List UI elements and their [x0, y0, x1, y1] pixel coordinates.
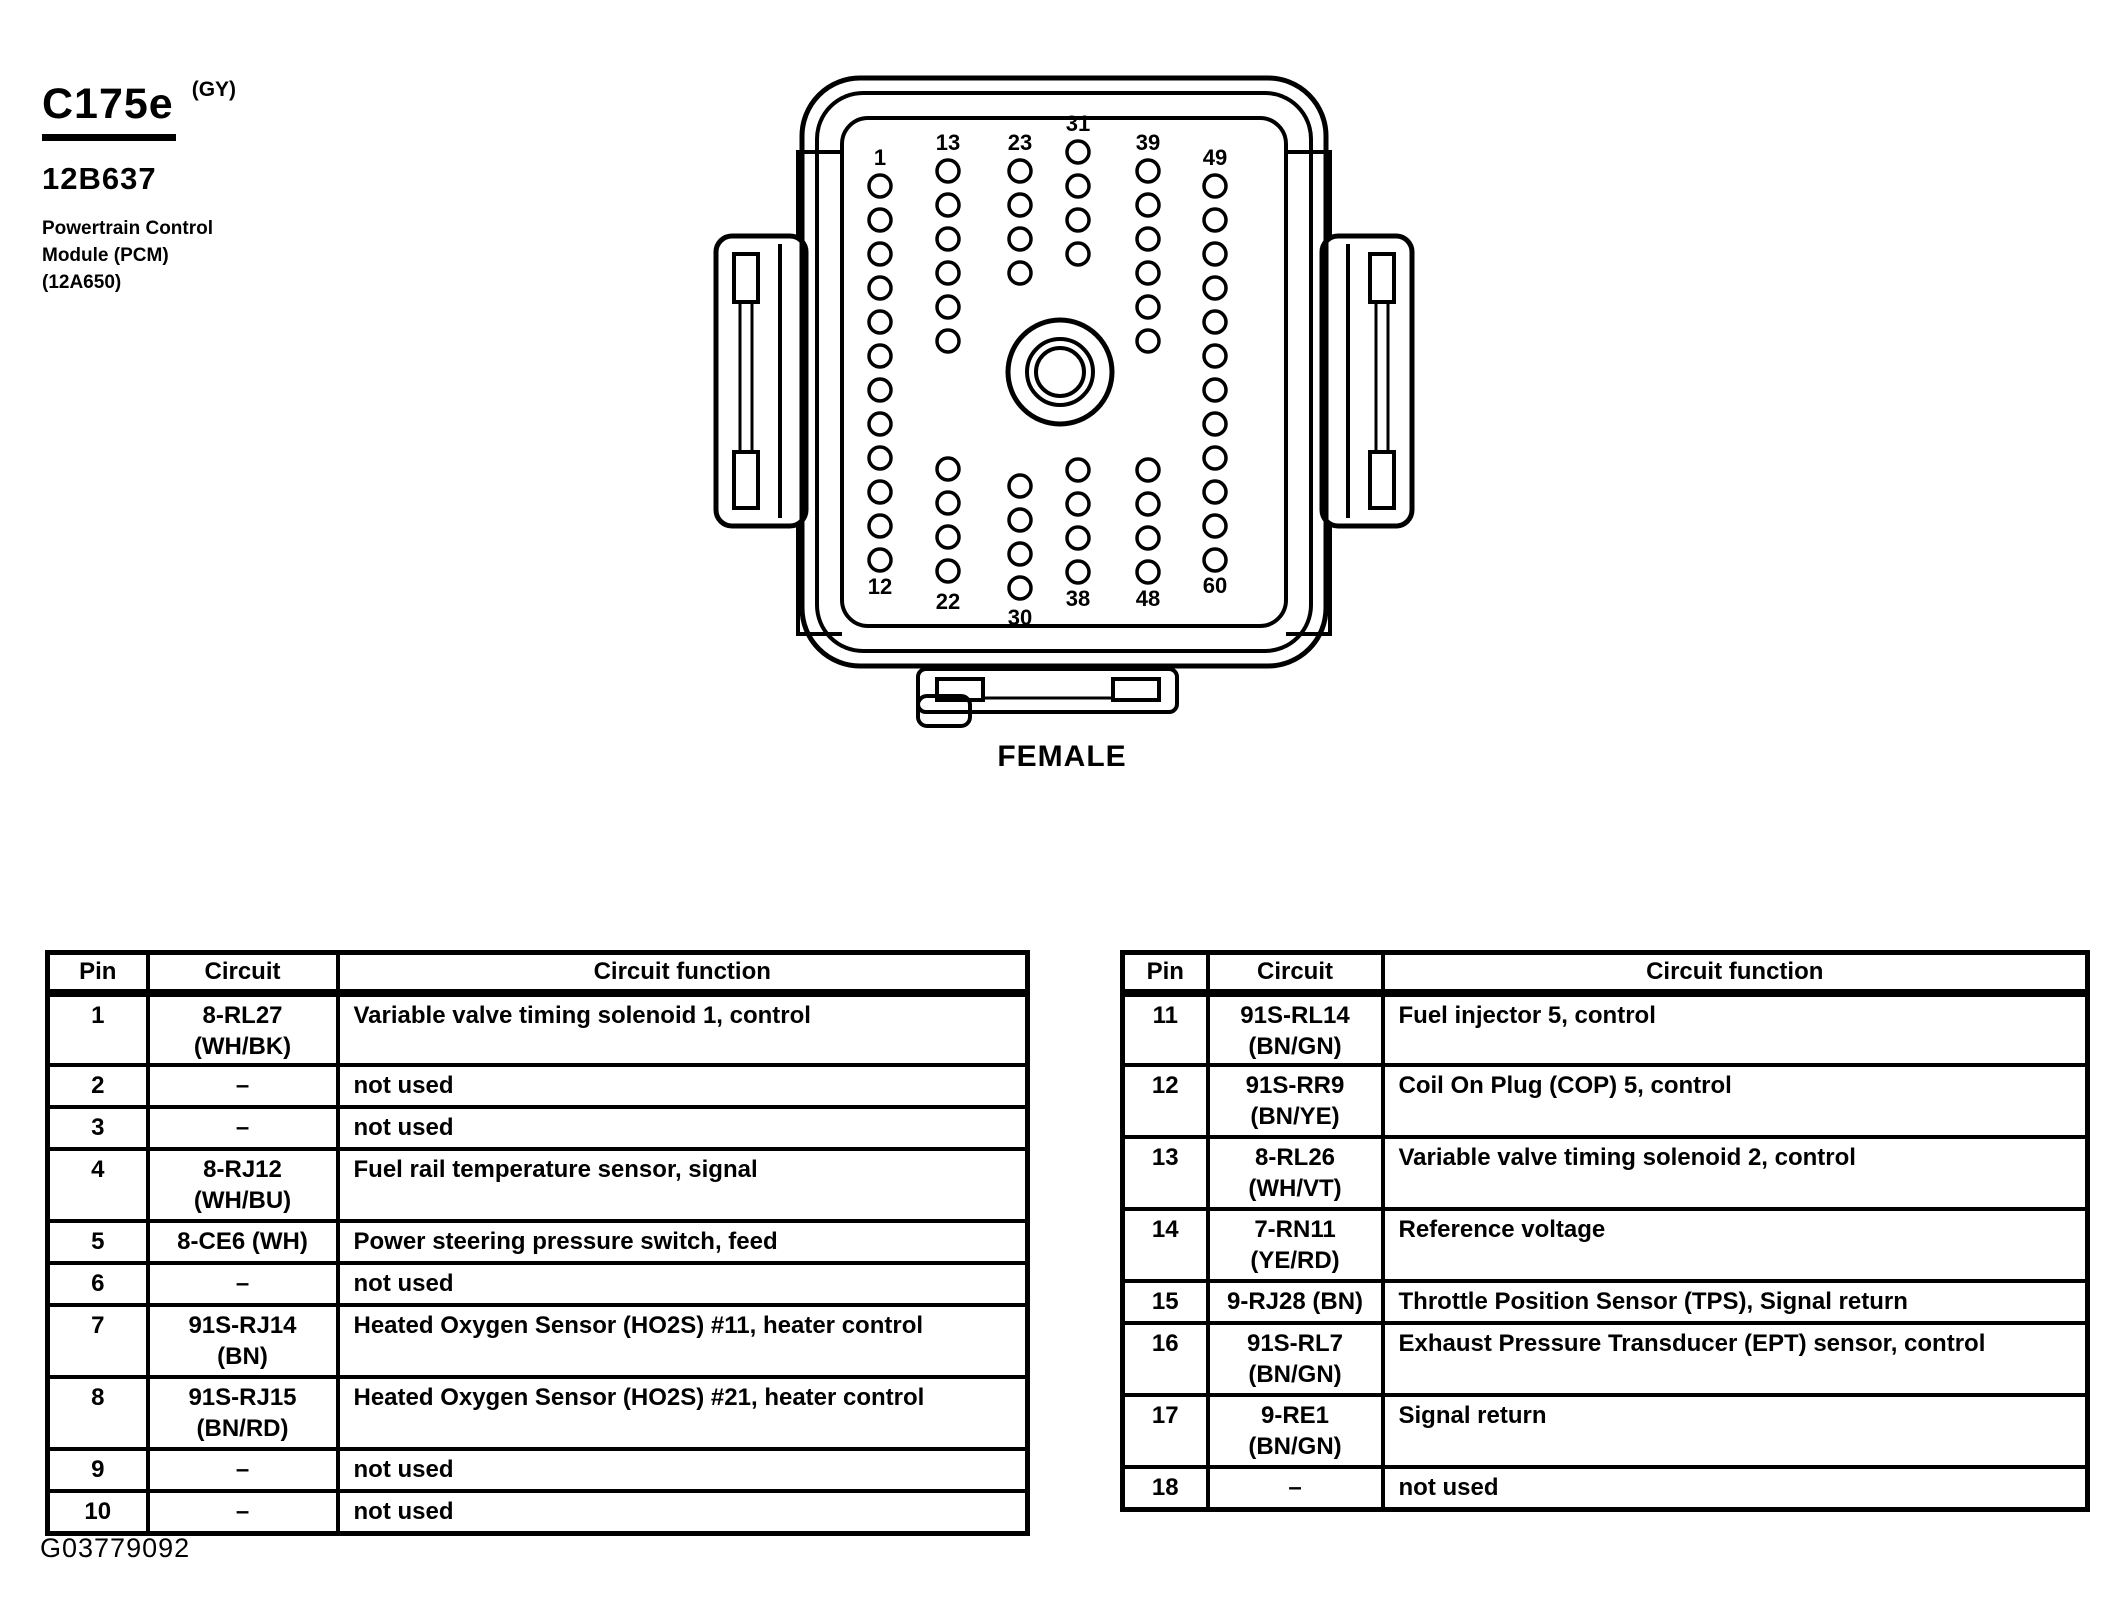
pin-hole: [1067, 561, 1089, 583]
circuit-function-cell: Variable valve timing solenoid 1, contro…: [338, 993, 1028, 1065]
pin-cell: 11: [1123, 993, 1208, 1065]
left-latch-lock-top: [734, 254, 758, 302]
pin-hole: [869, 243, 891, 265]
connector-title-row: C175e(GY): [42, 78, 236, 141]
pin-hole: [1137, 228, 1159, 250]
pin-hole: [1204, 447, 1226, 469]
pin-cell: 2: [48, 1065, 148, 1107]
pin-column-label-bottom: 48: [1136, 586, 1160, 611]
pin-hole: [869, 379, 891, 401]
pin-hole: [937, 458, 959, 480]
pin-hole: [1137, 527, 1159, 549]
connector-color-code: (GY): [192, 78, 236, 101]
pin-hole: [1137, 493, 1159, 515]
pin-cell: 5: [48, 1221, 148, 1263]
circuit-cell: 91S-RJ14(BN): [148, 1305, 338, 1377]
circuit-function-cell: Variable valve timing solenoid 2, contro…: [1383, 1137, 2088, 1209]
left-latch-step-top: [798, 152, 842, 236]
component-line: Module (PCM): [42, 242, 236, 269]
circuit-cell: 8-CE6 (WH): [148, 1221, 338, 1263]
pin-hole: [937, 262, 959, 284]
pin-hole: [937, 526, 959, 548]
right-latch: [1286, 152, 1412, 634]
figure-id: G03779092: [40, 1533, 190, 1564]
left-latch-slot: [740, 302, 752, 452]
pin-column-label-top: 49: [1203, 145, 1227, 170]
table-row: 791S-RJ14(BN)Heated Oxygen Sensor (HO2S)…: [48, 1305, 1028, 1377]
pin-hole: [1067, 175, 1089, 197]
circuit-function-cell: not used: [338, 1107, 1028, 1149]
circuit-cell: 91S-RJ15(BN/RD): [148, 1377, 338, 1449]
right-latch-lock-top: [1370, 254, 1394, 302]
table-row: 1691S-RL7(BN/GN)Exhaust Pressure Transdu…: [1123, 1323, 2088, 1395]
pin-hole: [1137, 262, 1159, 284]
pin-column-label-top: 31: [1066, 111, 1090, 136]
pin-cell: 7: [48, 1305, 148, 1377]
pin-hole: [937, 194, 959, 216]
pin-hole: [1067, 243, 1089, 265]
mounting-tab: [918, 669, 1177, 726]
pin-cell: 9: [48, 1449, 148, 1491]
pin-cell: 6: [48, 1263, 148, 1305]
pin-hole: [1067, 141, 1089, 163]
pin-table-right: Pin Circuit Circuit function 1191S-RL14(…: [1120, 950, 2090, 1512]
pin-header: Pin: [1123, 953, 1208, 994]
pin-cell: 4: [48, 1149, 148, 1221]
connector-diagram: 11213222330313839484960: [700, 60, 1420, 800]
pin-hole: [1204, 175, 1226, 197]
pin-cell: 8: [48, 1377, 148, 1449]
pin-hole: [1009, 509, 1031, 531]
pin-hole: [1204, 311, 1226, 333]
pin-cell: 14: [1123, 1209, 1208, 1281]
circuit-header: Circuit: [1208, 953, 1383, 994]
pin-cell: 1: [48, 993, 148, 1065]
circuit-cell: 91S-RL14(BN/GN): [1208, 993, 1383, 1065]
mounting-tab-bar: [918, 669, 1177, 712]
circuit-function-cell: Fuel rail temperature sensor, signal: [338, 1149, 1028, 1221]
table-row: 1291S-RR9(BN/YE)Coil On Plug (COP) 5, co…: [1123, 1065, 2088, 1137]
pin-cell: 3: [48, 1107, 148, 1149]
wiring-diagram-page: C175e(GY) 12B637 Powertrain Control Modu…: [0, 0, 2124, 1620]
pin-hole: [1067, 493, 1089, 515]
circuit-cell: 91S-RR9(BN/YE): [1208, 1065, 1383, 1137]
circuit-cell: 9-RE1(BN/GN): [1208, 1395, 1383, 1467]
circuit-cell: –: [148, 1263, 338, 1305]
pin-hole: [1137, 561, 1159, 583]
connector-id: C175e: [42, 80, 176, 141]
pin-hole: [869, 277, 891, 299]
left-latch: [716, 152, 842, 634]
pin-hole: [1204, 209, 1226, 231]
table-row: 891S-RJ15(BN/RD)Heated Oxygen Sensor (HO…: [48, 1377, 1028, 1449]
pin-grid: 11213222330313839484960: [868, 111, 1227, 630]
pin-hole: [1204, 243, 1226, 265]
component-description: Powertrain Control Module (PCM) (12A650): [42, 215, 236, 296]
pin-hole: [1009, 262, 1031, 284]
component-line: Powertrain Control: [42, 215, 236, 242]
circuit-cell: –: [148, 1065, 338, 1107]
pin-hole: [1137, 330, 1159, 352]
pin-column-label-bottom: 12: [868, 574, 892, 599]
pin-header: Pin: [48, 953, 148, 994]
pin-hole: [1204, 345, 1226, 367]
pin-cell: 12: [1123, 1065, 1208, 1137]
pin-hole: [869, 515, 891, 537]
circuit-function-cell: Heated Oxygen Sensor (HO2S) #11, heater …: [338, 1305, 1028, 1377]
pin-hole: [937, 560, 959, 582]
pin-hole: [869, 447, 891, 469]
circuit-function-cell: not used: [338, 1491, 1028, 1533]
circuit-function-cell: Coil On Plug (COP) 5, control: [1383, 1065, 2088, 1137]
table-row: 2–not used: [48, 1065, 1028, 1107]
pin-hole: [869, 413, 891, 435]
pin-column-label-top: 23: [1008, 130, 1032, 155]
right-latch-wing: [1322, 236, 1412, 526]
left-latch-lock-bottom: [734, 452, 758, 508]
pin-hole: [1204, 277, 1226, 299]
table-row: 159-RJ28 (BN)Throttle Position Sensor (T…: [1123, 1281, 2088, 1323]
circuit-function-cell: not used: [1383, 1467, 2088, 1509]
table-row: 9–not used: [48, 1449, 1028, 1491]
pin-column-label-top: 13: [936, 130, 960, 155]
pin-cell: 18: [1123, 1467, 1208, 1509]
circuit-function-cell: Fuel injector 5, control: [1383, 993, 2088, 1065]
circuit-cell: 91S-RL7(BN/GN): [1208, 1323, 1383, 1395]
pin-column-label-top: 39: [1136, 130, 1160, 155]
pin-hole: [1009, 194, 1031, 216]
circuit-header: Circuit: [148, 953, 338, 994]
circuit-function-cell: Heated Oxygen Sensor (HO2S) #21, heater …: [338, 1377, 1028, 1449]
circuit-cell: –: [148, 1491, 338, 1533]
left-latch-wing: [716, 236, 806, 526]
table-row: 1191S-RL14(BN/GN)Fuel injector 5, contro…: [1123, 993, 2088, 1065]
circuit-cell: 8-RJ12(WH/BU): [148, 1149, 338, 1221]
pin-hole: [869, 345, 891, 367]
pin-column-label-bottom: 30: [1008, 605, 1032, 630]
right-latch-step-top: [1286, 152, 1330, 236]
circuit-function-cell: Signal return: [1383, 1395, 2088, 1467]
pin-hole: [937, 296, 959, 318]
circuit-function-header: Circuit function: [1383, 953, 2088, 994]
pin-hole: [1009, 160, 1031, 182]
table-row: 48-RJ12(WH/BU)Fuel rail temperature sens…: [48, 1149, 1028, 1221]
table-row: 147-RN11(YE/RD)Reference voltage: [1123, 1209, 2088, 1281]
pin-cell: 13: [1123, 1137, 1208, 1209]
circuit-function-cell: Reference voltage: [1383, 1209, 2088, 1281]
component-line: (12A650): [42, 269, 236, 296]
pin-hole: [1204, 379, 1226, 401]
pin-hole: [1009, 228, 1031, 250]
pin-hole: [869, 311, 891, 333]
pin-hole: [869, 175, 891, 197]
circuit-cell: –: [148, 1449, 338, 1491]
circuit-cell: –: [1208, 1467, 1383, 1509]
mounting-tab-block-right: [1113, 679, 1159, 700]
pin-hole: [1137, 160, 1159, 182]
connector-middle-shell: [817, 93, 1311, 651]
pin-column-label-top: 1: [874, 145, 886, 170]
pin-hole: [1009, 543, 1031, 565]
circuit-cell: 7-RN11(YE/RD): [1208, 1209, 1383, 1281]
pin-cell: 17: [1123, 1395, 1208, 1467]
pin-column-label-bottom: 60: [1203, 573, 1227, 598]
center-hole-inner: [1036, 348, 1084, 396]
right-latch-slot: [1376, 302, 1388, 452]
right-latch-lock-bottom: [1370, 452, 1394, 508]
pin-cell: 15: [1123, 1281, 1208, 1323]
pin-hole: [937, 160, 959, 182]
pin-hole: [1204, 413, 1226, 435]
circuit-function-cell: Throttle Position Sensor (TPS), Signal r…: [1383, 1281, 2088, 1323]
circuit-function-cell: Exhaust Pressure Transducer (EPT) sensor…: [1383, 1323, 2088, 1395]
circuit-function-cell: not used: [338, 1449, 1028, 1491]
table-row: 3–not used: [48, 1107, 1028, 1149]
table-row: 18–not used: [1123, 1467, 2088, 1509]
circuit-cell: 8-RL27(WH/BK): [148, 993, 338, 1065]
pin-hole: [1137, 296, 1159, 318]
circuit-cell: –: [148, 1107, 338, 1149]
pin-hole: [1067, 459, 1089, 481]
pin-hole: [937, 492, 959, 514]
pin-hole: [937, 330, 959, 352]
table-row: 138-RL26(WH/VT)Variable valve timing sol…: [1123, 1137, 2088, 1209]
pin-hole: [937, 228, 959, 250]
header-block: C175e(GY) 12B637 Powertrain Control Modu…: [42, 78, 236, 296]
pin-hole: [1009, 577, 1031, 599]
center-alignment-hole: [1008, 320, 1112, 424]
pin-hole: [1204, 515, 1226, 537]
pin-hole: [869, 481, 891, 503]
connector-drawing: 11213222330313839484960: [700, 60, 1420, 800]
circuit-function-cell: not used: [338, 1263, 1028, 1305]
pin-column-label-bottom: 22: [936, 589, 960, 614]
pin-hole: [869, 209, 891, 231]
pin-column-label-bottom: 38: [1066, 586, 1090, 611]
pin-hole: [1204, 481, 1226, 503]
table-header-row: Pin Circuit Circuit function: [1123, 953, 2088, 994]
pin-hole: [1067, 209, 1089, 231]
table-row: 58-CE6 (WH)Power steering pressure switc…: [48, 1221, 1028, 1263]
circuit-cell: 8-RL26(WH/VT): [1208, 1137, 1383, 1209]
pin-cell: 16: [1123, 1323, 1208, 1395]
circuit-function-header: Circuit function: [338, 953, 1028, 994]
connector-gender-label: FEMALE: [962, 740, 1162, 774]
pin-cell: 10: [48, 1491, 148, 1533]
circuit-function-cell: not used: [338, 1065, 1028, 1107]
table-row: 10–not used: [48, 1491, 1028, 1533]
pin-hole: [1204, 549, 1226, 571]
pin-hole: [869, 549, 891, 571]
table-row: 6–not used: [48, 1263, 1028, 1305]
pin-hole: [1137, 194, 1159, 216]
circuit-cell: 9-RJ28 (BN): [1208, 1281, 1383, 1323]
pin-hole: [1009, 475, 1031, 497]
table-row: 179-RE1(BN/GN)Signal return: [1123, 1395, 2088, 1467]
part-number: 12B637: [42, 161, 236, 197]
pin-hole: [1067, 527, 1089, 549]
table-header-row: Pin Circuit Circuit function: [48, 953, 1028, 994]
pin-hole: [1137, 459, 1159, 481]
center-hole-outer: [1008, 320, 1112, 424]
pin-table-left: Pin Circuit Circuit function 18-RL27(WH/…: [45, 950, 1030, 1536]
table-row: 18-RL27(WH/BK)Variable valve timing sole…: [48, 993, 1028, 1065]
circuit-function-cell: Power steering pressure switch, feed: [338, 1221, 1028, 1263]
